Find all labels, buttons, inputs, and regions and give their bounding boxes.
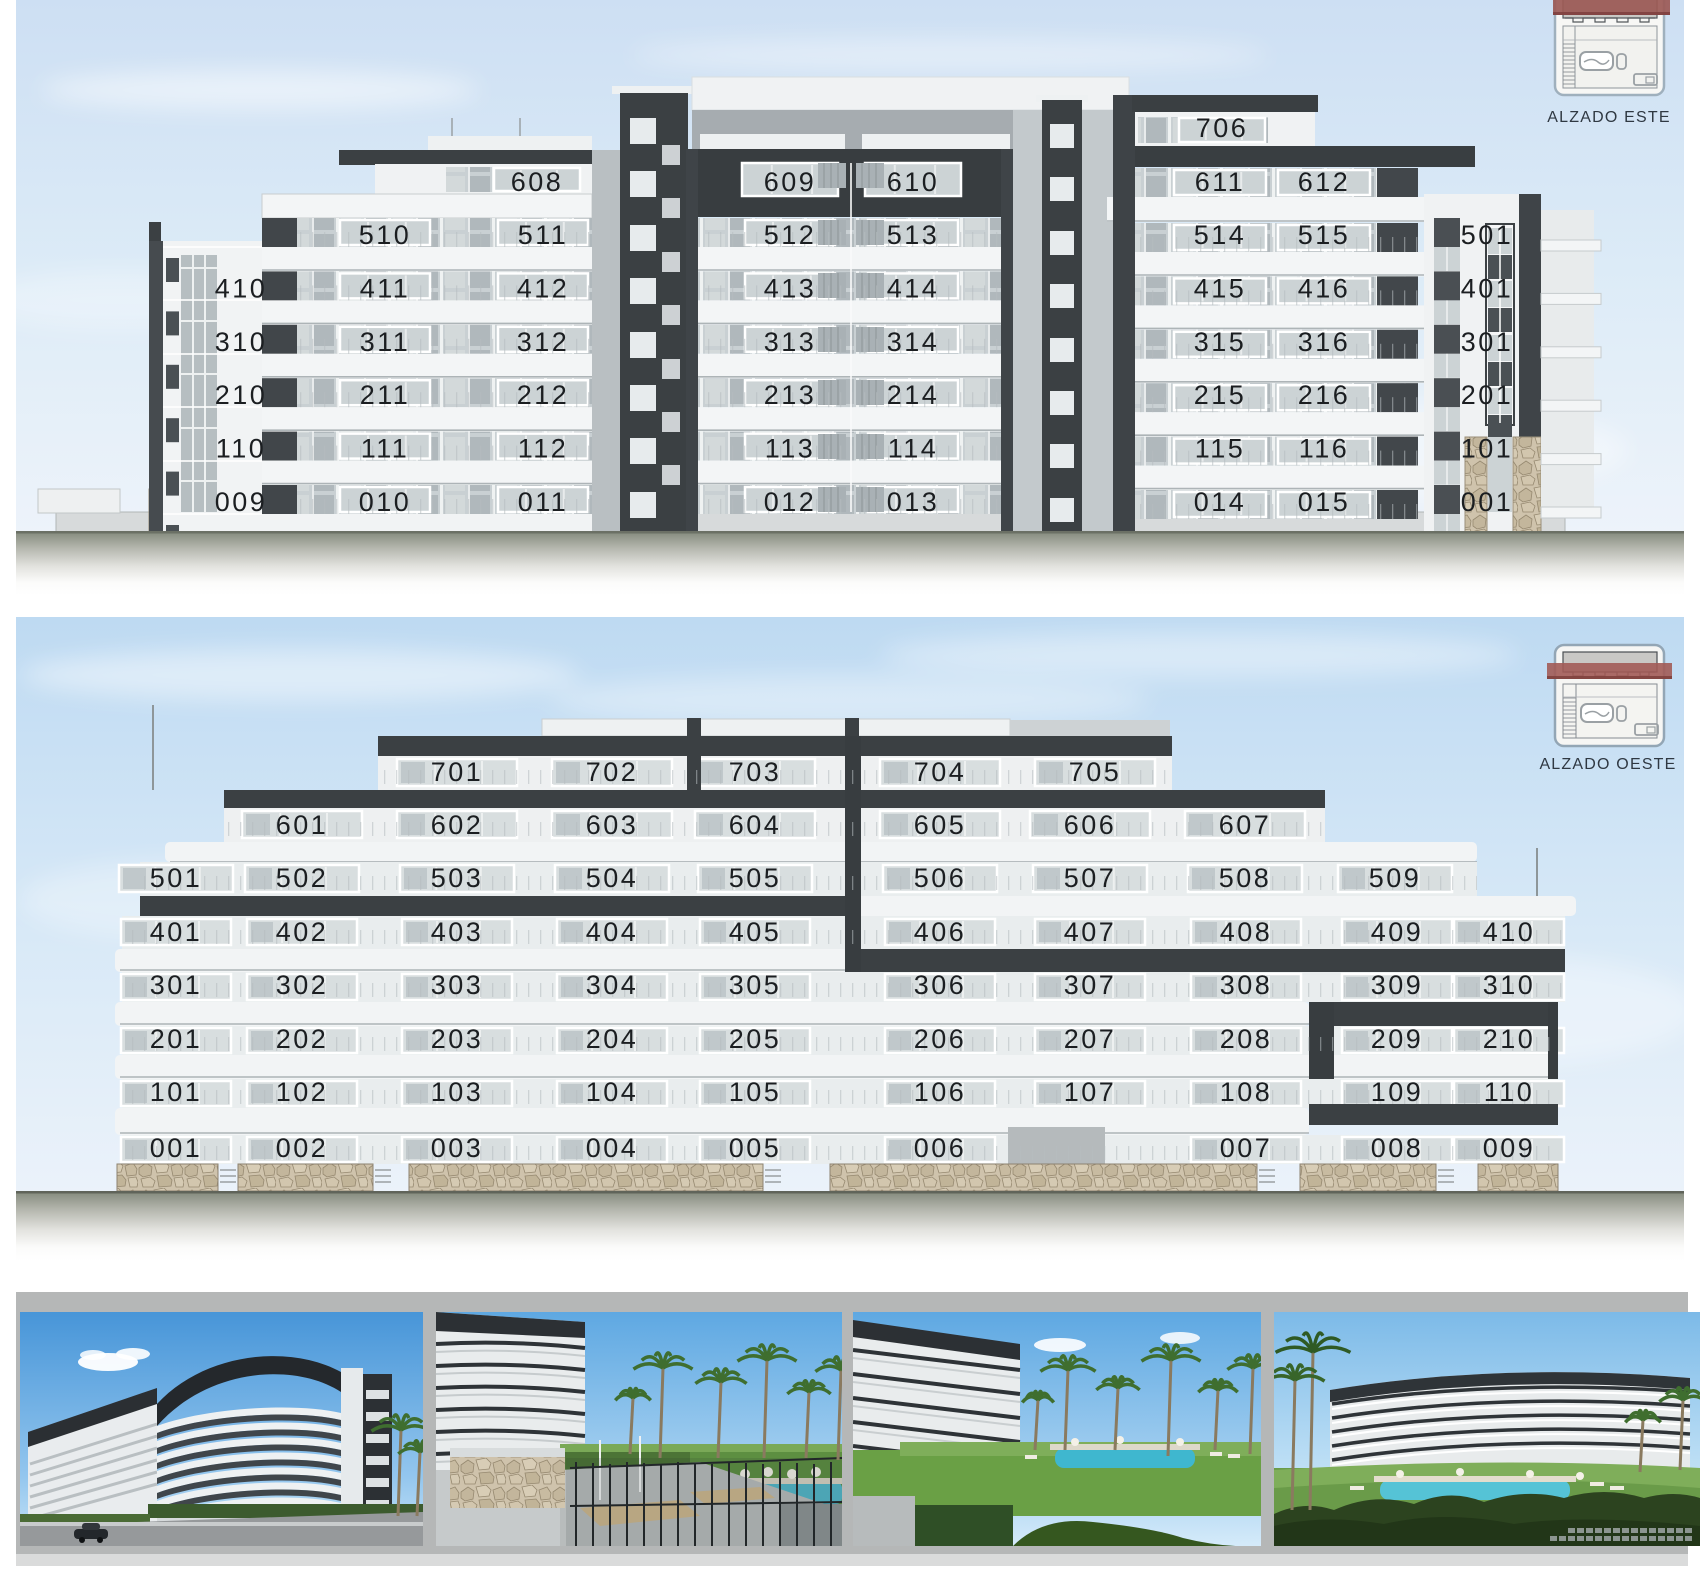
svg-text:201: 201	[1461, 380, 1514, 410]
svg-text:011: 011	[518, 487, 569, 517]
svg-text:206: 206	[914, 1024, 967, 1054]
svg-text:302: 302	[276, 970, 329, 1000]
svg-text:502: 502	[276, 863, 329, 893]
svg-text:505: 505	[729, 863, 782, 893]
svg-text:001: 001	[150, 1133, 203, 1163]
svg-text:412: 412	[517, 273, 570, 303]
svg-text:108: 108	[1220, 1077, 1273, 1107]
svg-text:316: 316	[1298, 327, 1351, 357]
svg-text:702: 702	[586, 757, 639, 787]
svg-text:511: 511	[518, 220, 569, 250]
svg-text:203: 203	[431, 1024, 484, 1054]
svg-text:416: 416	[1298, 273, 1351, 303]
svg-text:009: 009	[215, 487, 268, 517]
svg-text:606: 606	[1064, 810, 1117, 840]
svg-text:111: 111	[361, 434, 410, 464]
svg-text:101: 101	[1461, 434, 1514, 464]
svg-text:402: 402	[276, 917, 329, 947]
svg-text:501: 501	[150, 863, 203, 893]
svg-text:202: 202	[276, 1024, 329, 1054]
svg-text:210: 210	[1483, 1024, 1536, 1054]
svg-text:404: 404	[586, 917, 639, 947]
svg-text:515: 515	[1298, 220, 1351, 250]
svg-text:007: 007	[1220, 1133, 1273, 1163]
svg-text:214: 214	[887, 380, 940, 410]
svg-text:110: 110	[216, 434, 267, 464]
svg-text:407: 407	[1064, 917, 1117, 947]
svg-text:104: 104	[586, 1077, 639, 1107]
svg-text:015: 015	[1298, 487, 1351, 517]
svg-text:510: 510	[359, 220, 412, 250]
svg-text:301: 301	[1461, 327, 1514, 357]
svg-text:106: 106	[914, 1077, 967, 1107]
svg-text:413: 413	[764, 273, 817, 303]
svg-text:603: 603	[586, 810, 639, 840]
svg-text:303: 303	[431, 970, 484, 1000]
svg-text:102: 102	[276, 1077, 329, 1107]
svg-text:415: 415	[1194, 273, 1247, 303]
svg-text:602: 602	[431, 810, 484, 840]
svg-text:107: 107	[1064, 1077, 1117, 1107]
svg-text:213: 213	[764, 380, 817, 410]
svg-text:504: 504	[586, 863, 639, 893]
svg-text:612: 612	[1298, 167, 1351, 197]
svg-text:005: 005	[729, 1133, 782, 1163]
svg-text:704: 704	[914, 757, 967, 787]
svg-text:103: 103	[431, 1077, 484, 1107]
svg-text:401: 401	[150, 917, 203, 947]
svg-text:409: 409	[1371, 917, 1424, 947]
svg-text:609: 609	[764, 167, 817, 197]
svg-text:607: 607	[1219, 810, 1272, 840]
svg-text:003: 003	[431, 1133, 484, 1163]
svg-text:503: 503	[431, 863, 484, 893]
svg-text:507: 507	[1064, 863, 1117, 893]
svg-text:010: 010	[359, 487, 412, 517]
svg-text:101: 101	[150, 1077, 203, 1107]
svg-text:605: 605	[914, 810, 967, 840]
svg-text:705: 705	[1069, 757, 1122, 787]
svg-text:305: 305	[729, 970, 782, 1000]
svg-text:215: 215	[1194, 380, 1247, 410]
svg-text:210: 210	[215, 380, 268, 410]
svg-text:608: 608	[511, 167, 564, 197]
svg-text:112: 112	[518, 434, 569, 464]
svg-text:307: 307	[1064, 970, 1117, 1000]
svg-text:013: 013	[887, 487, 940, 517]
svg-text:014: 014	[1194, 487, 1247, 517]
svg-text:403: 403	[431, 917, 484, 947]
svg-text:001: 001	[1461, 487, 1514, 517]
svg-text:506: 506	[914, 863, 967, 893]
svg-text:110: 110	[1484, 1077, 1535, 1107]
svg-text:601: 601	[276, 810, 329, 840]
svg-text:703: 703	[729, 757, 782, 787]
svg-text:304: 304	[586, 970, 639, 1000]
svg-text:209: 209	[1371, 1024, 1424, 1054]
svg-text:309: 309	[1371, 970, 1424, 1000]
svg-text:514: 514	[1194, 220, 1247, 250]
svg-text:113: 113	[765, 434, 816, 464]
svg-text:314: 314	[887, 327, 940, 357]
svg-text:501: 501	[1461, 220, 1514, 250]
svg-text:006: 006	[914, 1133, 967, 1163]
svg-text:216: 216	[1298, 380, 1351, 410]
svg-text:410: 410	[215, 273, 268, 303]
svg-text:009: 009	[1483, 1133, 1536, 1163]
svg-text:114: 114	[888, 434, 939, 464]
svg-text:401: 401	[1461, 273, 1514, 303]
svg-text:610: 610	[887, 167, 940, 197]
svg-text:408: 408	[1220, 917, 1273, 947]
svg-text:405: 405	[729, 917, 782, 947]
svg-text:306: 306	[914, 970, 967, 1000]
svg-text:706: 706	[1196, 113, 1249, 143]
svg-text:201: 201	[150, 1024, 203, 1054]
svg-text:509: 509	[1369, 863, 1422, 893]
svg-text:204: 204	[586, 1024, 639, 1054]
svg-text:ALZADO OESTE: ALZADO OESTE	[1539, 756, 1676, 773]
svg-text:004: 004	[586, 1133, 639, 1163]
svg-text:604: 604	[729, 810, 782, 840]
svg-text:207: 207	[1064, 1024, 1117, 1054]
svg-text:212: 212	[517, 380, 570, 410]
svg-text:105: 105	[729, 1077, 782, 1107]
svg-text:311: 311	[360, 327, 411, 357]
svg-text:116: 116	[1299, 434, 1350, 464]
svg-text:008: 008	[1371, 1133, 1424, 1163]
svg-text:308: 308	[1220, 970, 1273, 1000]
svg-text:301: 301	[150, 970, 203, 1000]
svg-text:315: 315	[1194, 327, 1247, 357]
svg-text:414: 414	[887, 273, 940, 303]
svg-text:411: 411	[360, 273, 411, 303]
svg-text:611: 611	[1195, 167, 1246, 197]
svg-text:410: 410	[1483, 917, 1536, 947]
svg-text:701: 701	[431, 757, 484, 787]
svg-text:513: 513	[887, 220, 940, 250]
svg-text:211: 211	[360, 380, 411, 410]
svg-text:ALZADO ESTE: ALZADO ESTE	[1547, 109, 1670, 126]
svg-text:205: 205	[729, 1024, 782, 1054]
svg-text:310: 310	[215, 327, 268, 357]
svg-text:002: 002	[276, 1133, 329, 1163]
svg-text:109: 109	[1371, 1077, 1424, 1107]
svg-text:012: 012	[764, 487, 817, 517]
svg-text:312: 312	[517, 327, 570, 357]
svg-text:208: 208	[1220, 1024, 1273, 1054]
svg-text:115: 115	[1195, 434, 1246, 464]
svg-text:508: 508	[1219, 863, 1272, 893]
svg-text:313: 313	[764, 327, 817, 357]
svg-text:310: 310	[1483, 970, 1536, 1000]
svg-text:512: 512	[764, 220, 817, 250]
svg-text:406: 406	[914, 917, 967, 947]
